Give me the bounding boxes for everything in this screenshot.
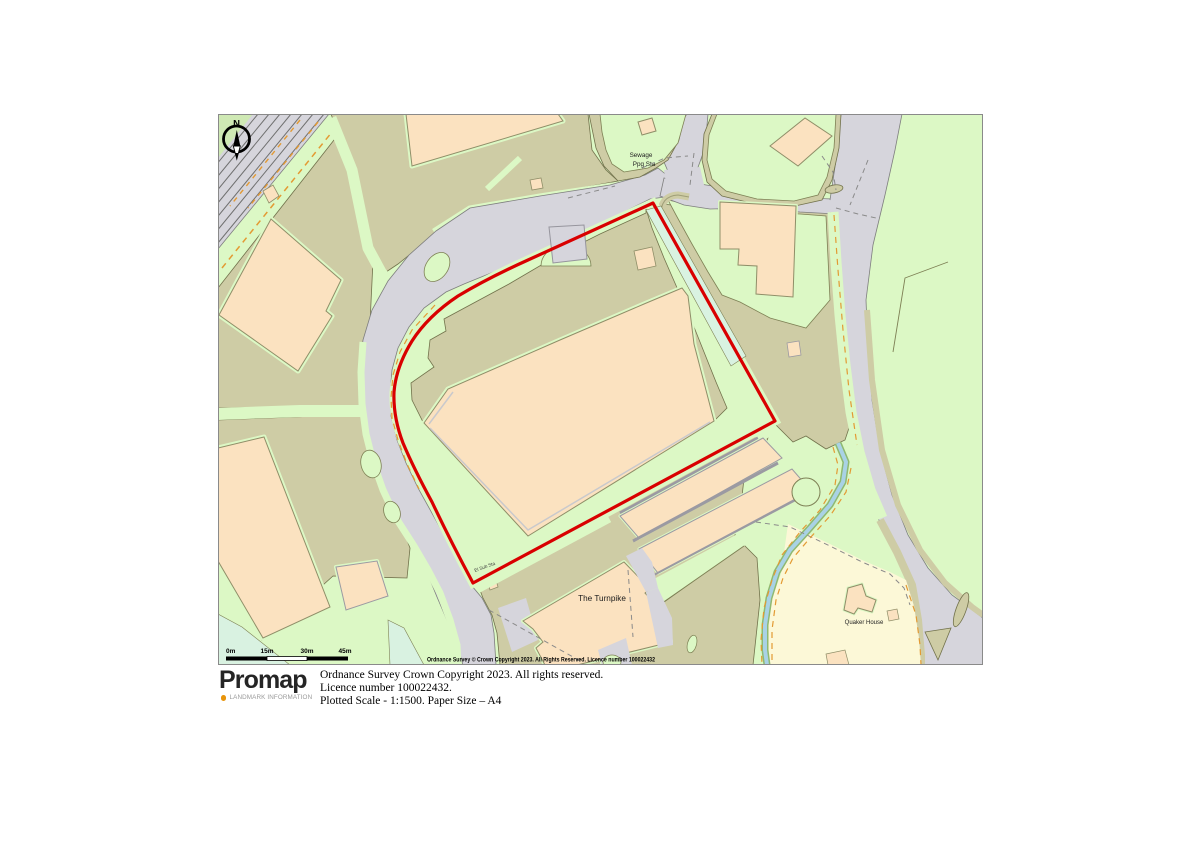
svg-text:Sewage: Sewage	[630, 152, 653, 159]
svg-text:The Turnpike: The Turnpike	[578, 594, 626, 603]
svg-text:Ordnance Survey © Crown Copyri: Ordnance Survey © Crown Copyright 2023. …	[427, 657, 655, 664]
svg-text:0m: 0m	[226, 648, 236, 655]
svg-text:N: N	[233, 119, 240, 130]
svg-text:30m: 30m	[300, 648, 313, 655]
svg-text:45m: 45m	[338, 648, 351, 655]
svg-text:15m: 15m	[260, 648, 273, 655]
svg-text:Quaker House: Quaker House	[845, 620, 884, 626]
